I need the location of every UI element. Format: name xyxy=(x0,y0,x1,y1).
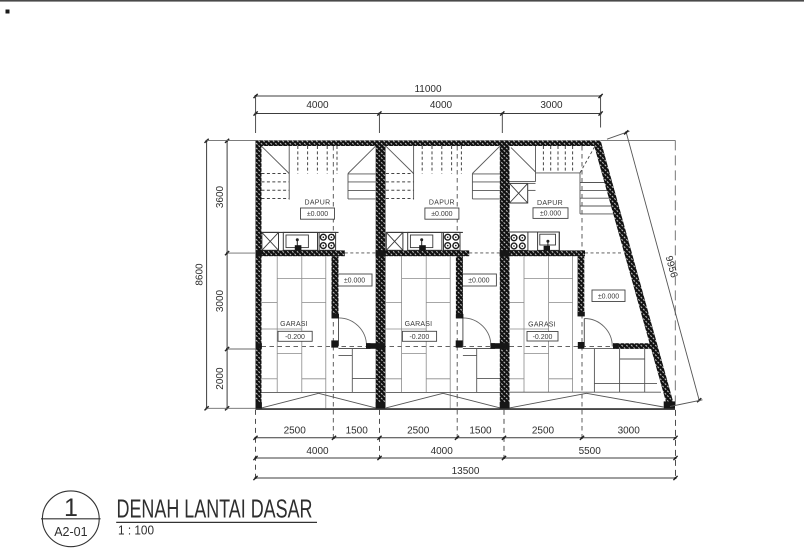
svg-text:DENAH LANTAI DASAR: DENAH LANTAI DASAR xyxy=(117,494,313,524)
svg-text:DAPUR: DAPUR xyxy=(429,199,455,206)
svg-text:±0.000: ±0.000 xyxy=(468,278,489,285)
svg-text:3600: 3600 xyxy=(215,185,226,208)
svg-text:8600: 8600 xyxy=(195,263,206,286)
svg-text:4000: 4000 xyxy=(306,446,329,457)
svg-text:2500: 2500 xyxy=(284,426,307,437)
svg-text:±0.000: ±0.000 xyxy=(307,211,328,218)
svg-text:GARASI: GARASI xyxy=(280,321,308,328)
svg-text:11000: 11000 xyxy=(414,84,442,95)
svg-text:GARASI: GARASI xyxy=(528,322,556,329)
svg-text:13500: 13500 xyxy=(452,466,480,477)
svg-text:3000: 3000 xyxy=(215,289,226,312)
svg-text:±0.000: ±0.000 xyxy=(598,293,619,300)
svg-text:3000: 3000 xyxy=(540,100,563,111)
svg-text:GARASI: GARASI xyxy=(405,321,433,328)
svg-text:3000: 3000 xyxy=(618,426,641,437)
svg-text:-0.200: -0.200 xyxy=(285,334,305,341)
svg-text:-0.200: -0.200 xyxy=(409,334,429,341)
svg-text:DAPUR: DAPUR xyxy=(537,200,563,207)
svg-text:4000: 4000 xyxy=(306,100,329,111)
svg-text:4000: 4000 xyxy=(431,446,454,457)
svg-text:±0.000: ±0.000 xyxy=(344,278,365,285)
svg-text:2500: 2500 xyxy=(407,426,430,437)
svg-text:2500: 2500 xyxy=(532,426,555,437)
svg-text:1500: 1500 xyxy=(346,426,369,437)
svg-text:5500: 5500 xyxy=(579,446,602,457)
svg-text:1 : 100: 1 : 100 xyxy=(118,522,154,537)
svg-text:±0.000: ±0.000 xyxy=(540,211,561,218)
svg-text:±0.000: ±0.000 xyxy=(431,211,452,218)
svg-text:DAPUR: DAPUR xyxy=(304,199,330,206)
svg-text:2000: 2000 xyxy=(215,367,226,390)
svg-text:1500: 1500 xyxy=(469,426,492,437)
svg-text:1: 1 xyxy=(64,494,78,522)
svg-text:A2-01: A2-01 xyxy=(54,525,87,539)
svg-text:-0.200: -0.200 xyxy=(533,334,553,341)
svg-text:4000: 4000 xyxy=(430,100,453,111)
